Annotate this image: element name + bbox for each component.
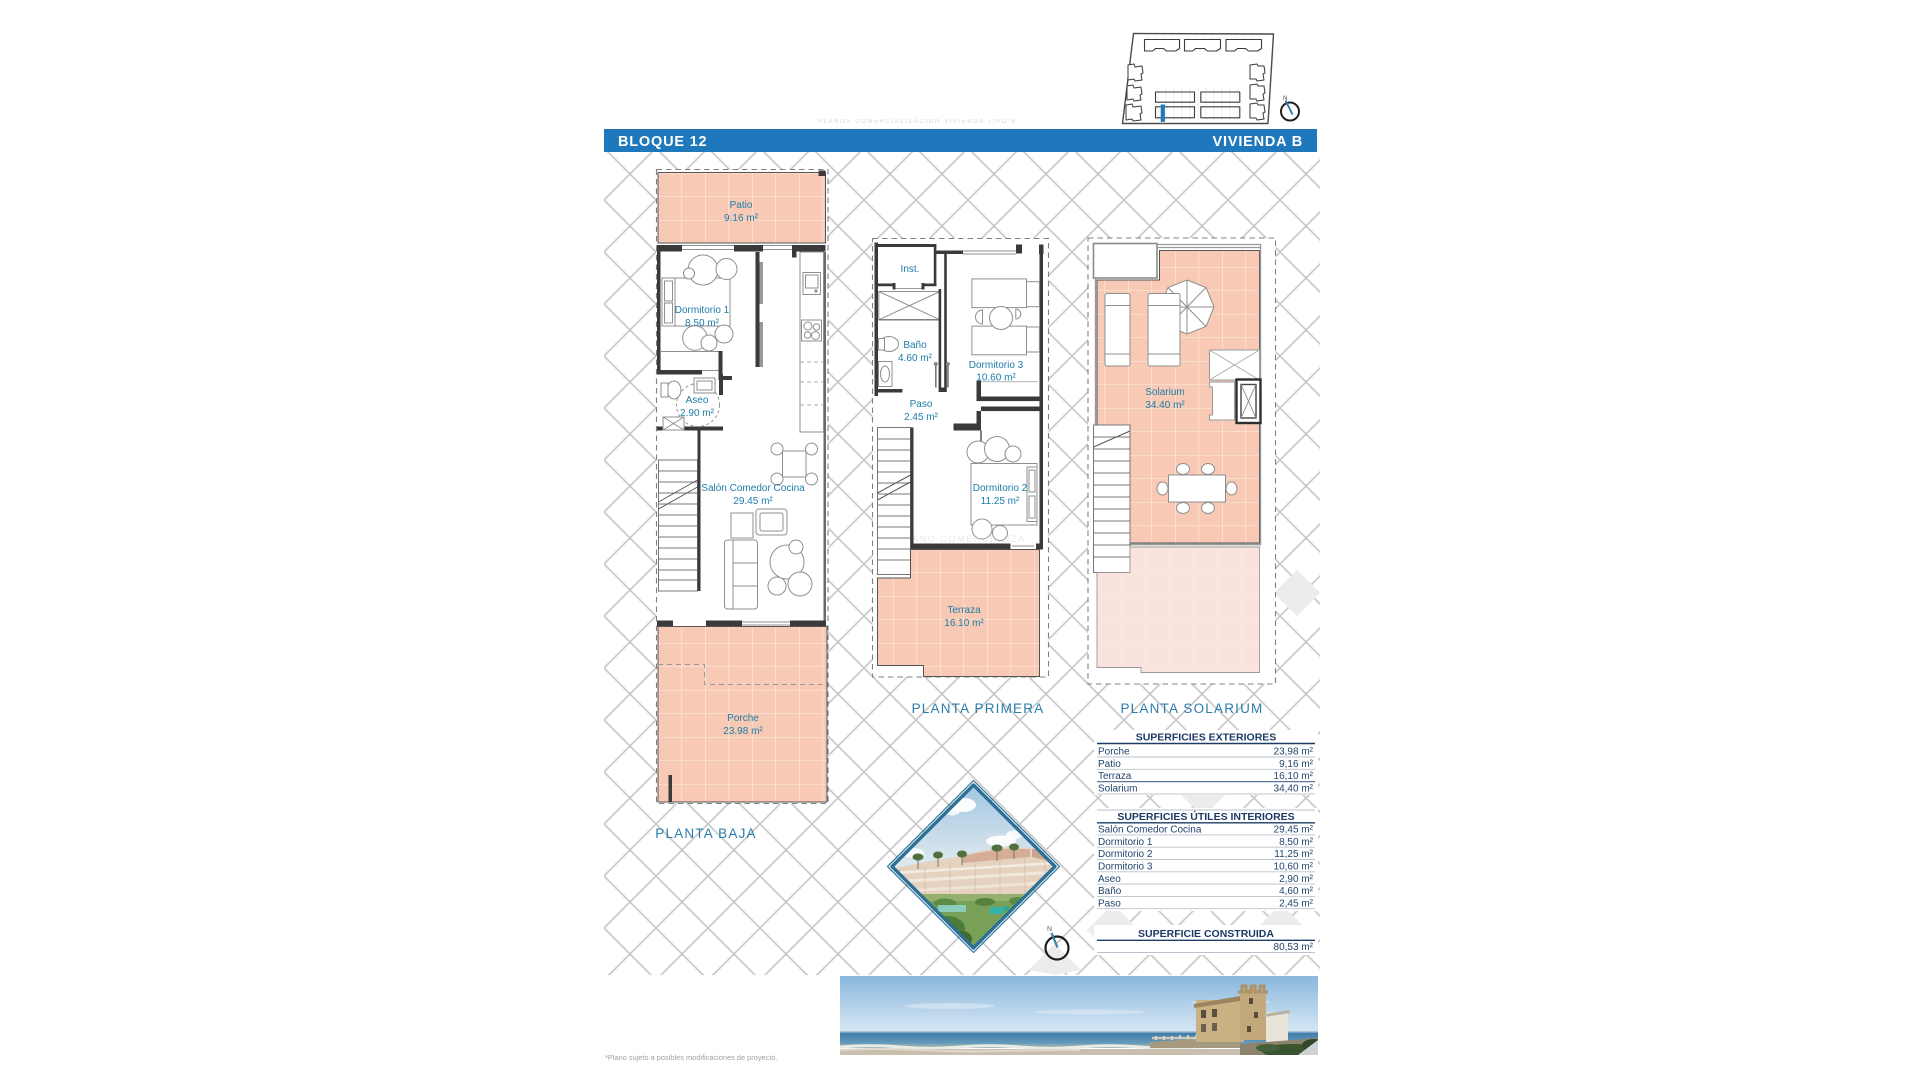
svg-text:SUPERFICIES ÚTILES INTERIORES: SUPERFICIES ÚTILES INTERIORES bbox=[1117, 810, 1294, 823]
svg-text:4,60 m²: 4,60 m² bbox=[1279, 886, 1314, 897]
svg-text:16.10 m²: 16.10 m² bbox=[944, 618, 984, 629]
svg-text:Inst.: Inst. bbox=[901, 264, 920, 275]
svg-text:Dormitorio 2: Dormitorio 2 bbox=[1098, 849, 1153, 860]
svg-text:4.60 m²: 4.60 m² bbox=[898, 353, 933, 364]
svg-text:Solarium: Solarium bbox=[1098, 783, 1137, 794]
svg-text:*Plano sujeto a posibles modif: *Plano sujeto a posibles modificaciones … bbox=[605, 1053, 778, 1062]
svg-text:23.98 m²: 23.98 m² bbox=[723, 726, 763, 737]
svg-text:N: N bbox=[1047, 926, 1052, 933]
svg-text:29.45 m²: 29.45 m² bbox=[733, 496, 773, 507]
svg-text:23,98 m²: 23,98 m² bbox=[1274, 747, 1314, 758]
svg-text:Paso: Paso bbox=[910, 399, 933, 410]
svg-text:Salón Comedor Cocina: Salón Comedor Cocina bbox=[1098, 825, 1202, 836]
svg-text:10,60 m²: 10,60 m² bbox=[1274, 862, 1314, 873]
svg-text:PLANOS COMERCIALIZACION VIVIEN: PLANOS COMERCIALIZACION VIVIENDA TIPO B bbox=[818, 119, 1017, 125]
svg-text:2.45 m²: 2.45 m² bbox=[904, 412, 939, 423]
svg-text:Aseo: Aseo bbox=[686, 395, 709, 406]
svg-text:Dormitorio 3: Dormitorio 3 bbox=[969, 360, 1024, 371]
svg-text:11,25 m²: 11,25 m² bbox=[1274, 849, 1313, 860]
svg-text:34.40 m²: 34.40 m² bbox=[1145, 400, 1185, 411]
svg-text:SUPERFICIE CONSTRUIDA: SUPERFICIE CONSTRUIDA bbox=[1138, 928, 1274, 940]
svg-text:Solarium: Solarium bbox=[1145, 387, 1184, 398]
svg-text:PLANTA BAJA: PLANTA BAJA bbox=[655, 826, 756, 841]
svg-text:9,16 m²: 9,16 m² bbox=[1279, 759, 1314, 770]
svg-text:Dormitorio 1: Dormitorio 1 bbox=[675, 305, 730, 316]
svg-text:11.25 m²: 11.25 m² bbox=[981, 496, 1020, 507]
svg-text:9.16 m²: 9.16 m² bbox=[724, 213, 759, 224]
svg-text:Dormitorio 2: Dormitorio 2 bbox=[973, 483, 1028, 494]
svg-text:80,53 m²: 80,53 m² bbox=[1274, 942, 1314, 953]
svg-text:16,10 m²: 16,10 m² bbox=[1274, 771, 1314, 782]
svg-text:Porche: Porche bbox=[727, 713, 759, 724]
svg-text:2.90 m²: 2.90 m² bbox=[680, 408, 715, 419]
svg-text:34,40 m²: 34,40 m² bbox=[1274, 783, 1314, 794]
svg-text:Terraza: Terraza bbox=[947, 605, 981, 616]
svg-text:8,50 m²: 8,50 m² bbox=[1279, 837, 1314, 848]
svg-text:Baño: Baño bbox=[903, 340, 927, 351]
svg-text:Salón Comedor Cocina: Salón Comedor Cocina bbox=[701, 483, 805, 494]
svg-text:Terraza: Terraza bbox=[1098, 771, 1132, 782]
svg-text:SUPERFICIES EXTERIORES: SUPERFICIES EXTERIORES bbox=[1136, 732, 1277, 744]
svg-text:BLOQUE 12: BLOQUE 12 bbox=[618, 134, 707, 150]
svg-text:VIVIENDA B: VIVIENDA B bbox=[1213, 134, 1303, 150]
svg-text:Dormitorio 3: Dormitorio 3 bbox=[1098, 862, 1153, 873]
svg-text:Patio: Patio bbox=[730, 200, 753, 211]
svg-text:Paso: Paso bbox=[1098, 898, 1121, 909]
svg-text:PLANTA SOLARIUM: PLANTA SOLARIUM bbox=[1120, 701, 1263, 716]
svg-text:8.50 m²: 8.50 m² bbox=[685, 318, 720, 329]
svg-text:Aseo: Aseo bbox=[1098, 874, 1121, 885]
svg-text:Dormitorio 1: Dormitorio 1 bbox=[1098, 837, 1153, 848]
svg-text:2,45 m²: 2,45 m² bbox=[1279, 898, 1314, 909]
svg-text:Baño: Baño bbox=[1098, 886, 1122, 897]
svg-text:N: N bbox=[1283, 96, 1287, 102]
svg-text:Porche: Porche bbox=[1098, 747, 1130, 758]
svg-text:PLANTA PRIMERA: PLANTA PRIMERA bbox=[912, 701, 1045, 716]
svg-text:29,45 m²: 29,45 m² bbox=[1274, 825, 1314, 836]
svg-text:Patio: Patio bbox=[1098, 759, 1121, 770]
svg-text:2,90 m²: 2,90 m² bbox=[1279, 874, 1314, 885]
